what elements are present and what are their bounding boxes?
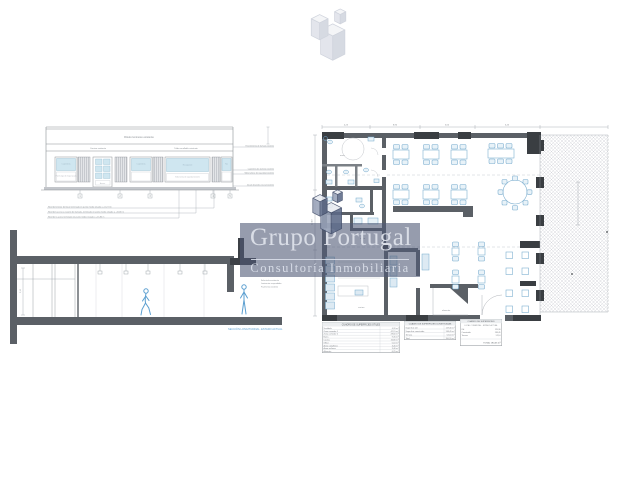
facade-narrow-window: Fijo: [221, 157, 232, 182]
marker-5: 5: [229, 195, 231, 198]
side-note-3: Vidrio laminar de seguridad existente: [244, 171, 274, 174]
side-note-2: Carpintería de aluminio existente: [248, 167, 274, 170]
legend-row-label: Zona comedor 2: [324, 334, 339, 336]
section-note-1: Falso techo existente: [261, 279, 279, 282]
table-group: [393, 185, 409, 205]
section-partitions: [17, 264, 75, 317]
legend-row-label: Total: [406, 337, 411, 340]
legend-row-value: 6,25 m²: [392, 350, 399, 353]
table-group: [423, 185, 439, 205]
facade-markers: [78, 190, 232, 198]
legend-table-superficies-utiles: CUADRO DE SUPERFICIES ÚTILES Vestíbulo 4…: [322, 322, 400, 353]
terrace-hatched-area: [540, 135, 608, 312]
legend-row-value: 28,60 m²: [391, 333, 399, 336]
plan-dim-1: 4,25: [344, 124, 349, 126]
watermark-tagline-text: Consultoría Inmobiliaria: [240, 261, 420, 276]
window-panel-note: Panel ciego de chapa lacada: [56, 176, 77, 178]
legend-row-label: Vestíbulo: [324, 327, 333, 330]
window-label: Carpintería: [62, 163, 71, 166]
legend-row-label: Office: [324, 342, 330, 344]
watermark-divider: [251, 259, 409, 260]
marker-2: 2: [119, 195, 121, 198]
legend-title: CUADRO DE SUPERFICIES ÚTILES: [342, 323, 381, 326]
legend-total: TOTAL 190,55 m²: [483, 342, 500, 345]
shop-window-label: Escaparate: [183, 164, 193, 167]
table-group: [423, 145, 439, 165]
sign-band-label: Rótulo luminoso existente: [124, 135, 154, 139]
facade-window-2: Carpintería: [130, 157, 152, 182]
level-leader-lines: [47, 190, 214, 218]
bar-counter: [393, 206, 473, 217]
round-table-group: [498, 176, 532, 210]
side-note-4: Zócalo de piedra natural existente: [247, 183, 274, 186]
pendant-lamp-icons: [98, 264, 207, 274]
ground-band: [44, 187, 236, 190]
legend-title: CUADRO DE SUPERFICIES: [468, 320, 496, 323]
marker-1: 1: [79, 195, 81, 198]
facade-window-1: Carpintería Panel ciego de chapa lacada: [55, 157, 77, 182]
room-label-cocina: cocina: [358, 307, 365, 309]
legend-row-value: 119,30: [495, 329, 501, 331]
table-group: [451, 145, 467, 165]
facade-shop-window: Escaparate Vidrio laminar de seguridad e…: [165, 157, 210, 182]
legend-row-value: 42,15 m²: [391, 330, 399, 333]
section-dim-label: 3,10: [20, 288, 22, 293]
room-label-almacen: almacén: [442, 310, 451, 312]
legend-row-value: 9,35 m²: [392, 336, 399, 339]
walking-person-figure: [141, 289, 151, 315]
legend-row-label: Superficie construida: [406, 330, 426, 333]
legend-row-label: Aseo señoras: [324, 347, 336, 350]
legend-row-value: 4,20 m²: [392, 327, 399, 330]
legend-row-value: 3,45 m²: [392, 344, 399, 347]
legend-row-value: 52,10 m²: [447, 333, 455, 336]
room-label-aseo: aseo: [340, 155, 346, 157]
standing-person-figure: [241, 285, 248, 314]
facade-door: Acceso: [93, 157, 112, 187]
legend-table-superficies-construidas: CUADRO DE SUPERFICIES CONSTRUIDAS Superf…: [404, 321, 456, 340]
plan-dim-4: 3,45: [505, 124, 510, 126]
legend-row-label: Aseo caballeros: [324, 344, 338, 347]
legend-row-value: 52,10: [496, 335, 501, 337]
plan-dim-3: 5,60: [445, 124, 450, 126]
side-leader-lines: [233, 127, 274, 186]
table-group: [451, 185, 467, 205]
legend-row-value: 5,10 m²: [392, 341, 399, 344]
legend-table-resumen: CUADRO DE SUPERFICIES LOCAL COMERCIAL · …: [460, 319, 502, 346]
legend-row-label: Superficie útil: [406, 326, 419, 329]
blueprint-sheet: Rótulo luminoso existente Cornisa existe…: [0, 0, 640, 480]
bath-door-arcs: [371, 148, 378, 177]
section-caption: SECCIÓN LONGITUDINAL. ESTADO ACTUAL: [228, 326, 283, 331]
entrance-door-arc: [482, 295, 502, 315]
section-note-3: Pavimento existente: [261, 285, 278, 288]
legend-row-value: 119,30 m²: [446, 326, 455, 329]
legend-row-value: 3,40 m²: [392, 347, 399, 350]
section-note-2: Luminarias suspendidas: [261, 282, 281, 285]
legend-row-label: Terraza: [406, 334, 414, 336]
band-label-right: Toldo enrollable existente: [174, 147, 198, 150]
legend-title: CUADRO DE SUPERFICIES CONSTRUIDAS: [409, 322, 452, 325]
legend-row-label: Cocina: [324, 340, 331, 342]
legend-subtitle: LOCAL COMERCIAL · ESTADO ACTUAL: [464, 324, 497, 327]
table-group-large: [488, 144, 514, 164]
facade-elevation-drawing: Rótulo luminoso existente Cornisa existe…: [36, 118, 276, 230]
side-note-1: Revestimiento de fachada existente: [246, 144, 274, 147]
faint-cube-watermark-icon: [301, 6, 357, 66]
legend-row-label: Almacén: [324, 350, 332, 353]
level-note-3: Nivel de la acera terminado en punto med…: [48, 215, 105, 218]
legend-row-label: Construida: [462, 331, 472, 334]
legend-row-value: 138,45 m²: [445, 330, 454, 333]
legend-row-value: 138,45: [495, 332, 501, 334]
table-group-small: [452, 242, 485, 289]
band-label-left: Cornisa existente: [90, 147, 107, 150]
table-group: [393, 145, 409, 165]
plan-dim-2: 8,90: [393, 124, 398, 126]
legend-row-label: Terraza: [462, 334, 469, 337]
level-note-2: Nivel del acceso a rasante de fachada, t…: [48, 210, 124, 213]
window-label: Carpintería: [137, 163, 146, 166]
marker-3: 3: [149, 195, 151, 198]
narrow-window-label: Fijo: [225, 164, 228, 166]
legend-row-value: 190,55 m²: [445, 337, 454, 340]
legend-row-label: Zona comedor 1: [324, 331, 339, 333]
level-note-1: Nivel del interior del local terminado e…: [48, 205, 112, 208]
legend-row-value: 16,80 m²: [391, 339, 399, 342]
grupo-portugal-cube-logo-icon: [304, 186, 352, 240]
floor-plan-drawing: 4,25 8,90 5,60 3,45 12,40: [310, 120, 616, 324]
